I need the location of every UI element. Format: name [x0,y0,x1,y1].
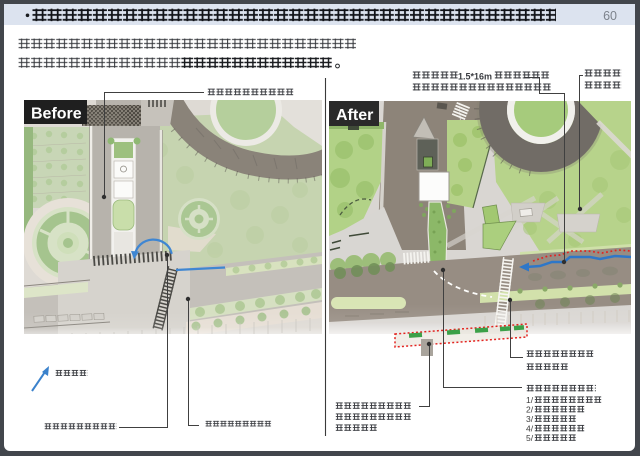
svg-text:3/: 3/ [526,414,534,424]
svg-text:1.5*16m: 1.5*16m [458,72,492,82]
svg-text:60: 60 [603,9,617,23]
svg-text:5/: 5/ [526,433,534,443]
svg-text:1/: 1/ [526,395,534,405]
svg-text:Before: Before [31,106,82,123]
svg-text:4/: 4/ [526,424,534,434]
svg-text:After: After [336,107,373,124]
svg-text:2/: 2/ [526,405,534,415]
